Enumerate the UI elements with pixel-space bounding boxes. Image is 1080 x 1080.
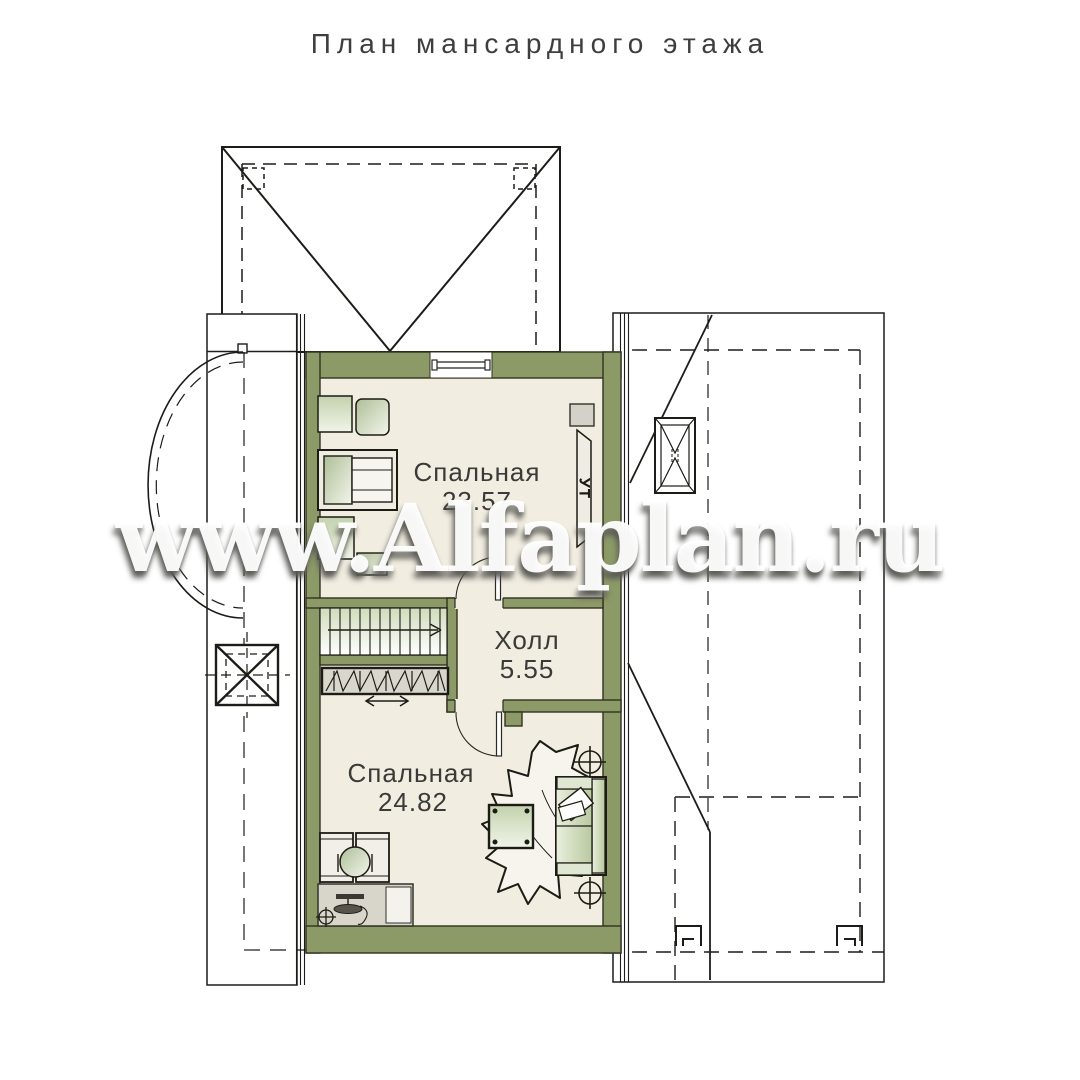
hall-area: 5.55 [500, 654, 555, 684]
right-wing [613, 313, 884, 982]
armchair [356, 399, 389, 435]
wall-stub [505, 712, 522, 726]
bedroom1-name: Спальная [414, 457, 541, 487]
tv-speaker [570, 404, 594, 426]
bedroom2-area: 24.82 [378, 787, 448, 817]
wall-bottom [306, 926, 621, 953]
chimney-shaft-symbol [205, 632, 290, 718]
hall-name: Холл [494, 625, 559, 655]
nightstand [318, 396, 352, 432]
window-top [430, 352, 492, 378]
stair-divider-wall [320, 655, 447, 665]
coffee-table [489, 805, 533, 848]
bedroom2-name: Спальная [348, 758, 475, 788]
watermark: www.Alfaplan.ru [116, 492, 1080, 586]
left-wing [148, 314, 311, 985]
stair-railing [322, 668, 448, 694]
chair [340, 847, 370, 877]
wall-left [306, 352, 320, 953]
floor-plan-page: План мансардного этажа [0, 0, 1080, 1080]
skylight-window [655, 418, 695, 493]
door-leaf [497, 712, 502, 756]
